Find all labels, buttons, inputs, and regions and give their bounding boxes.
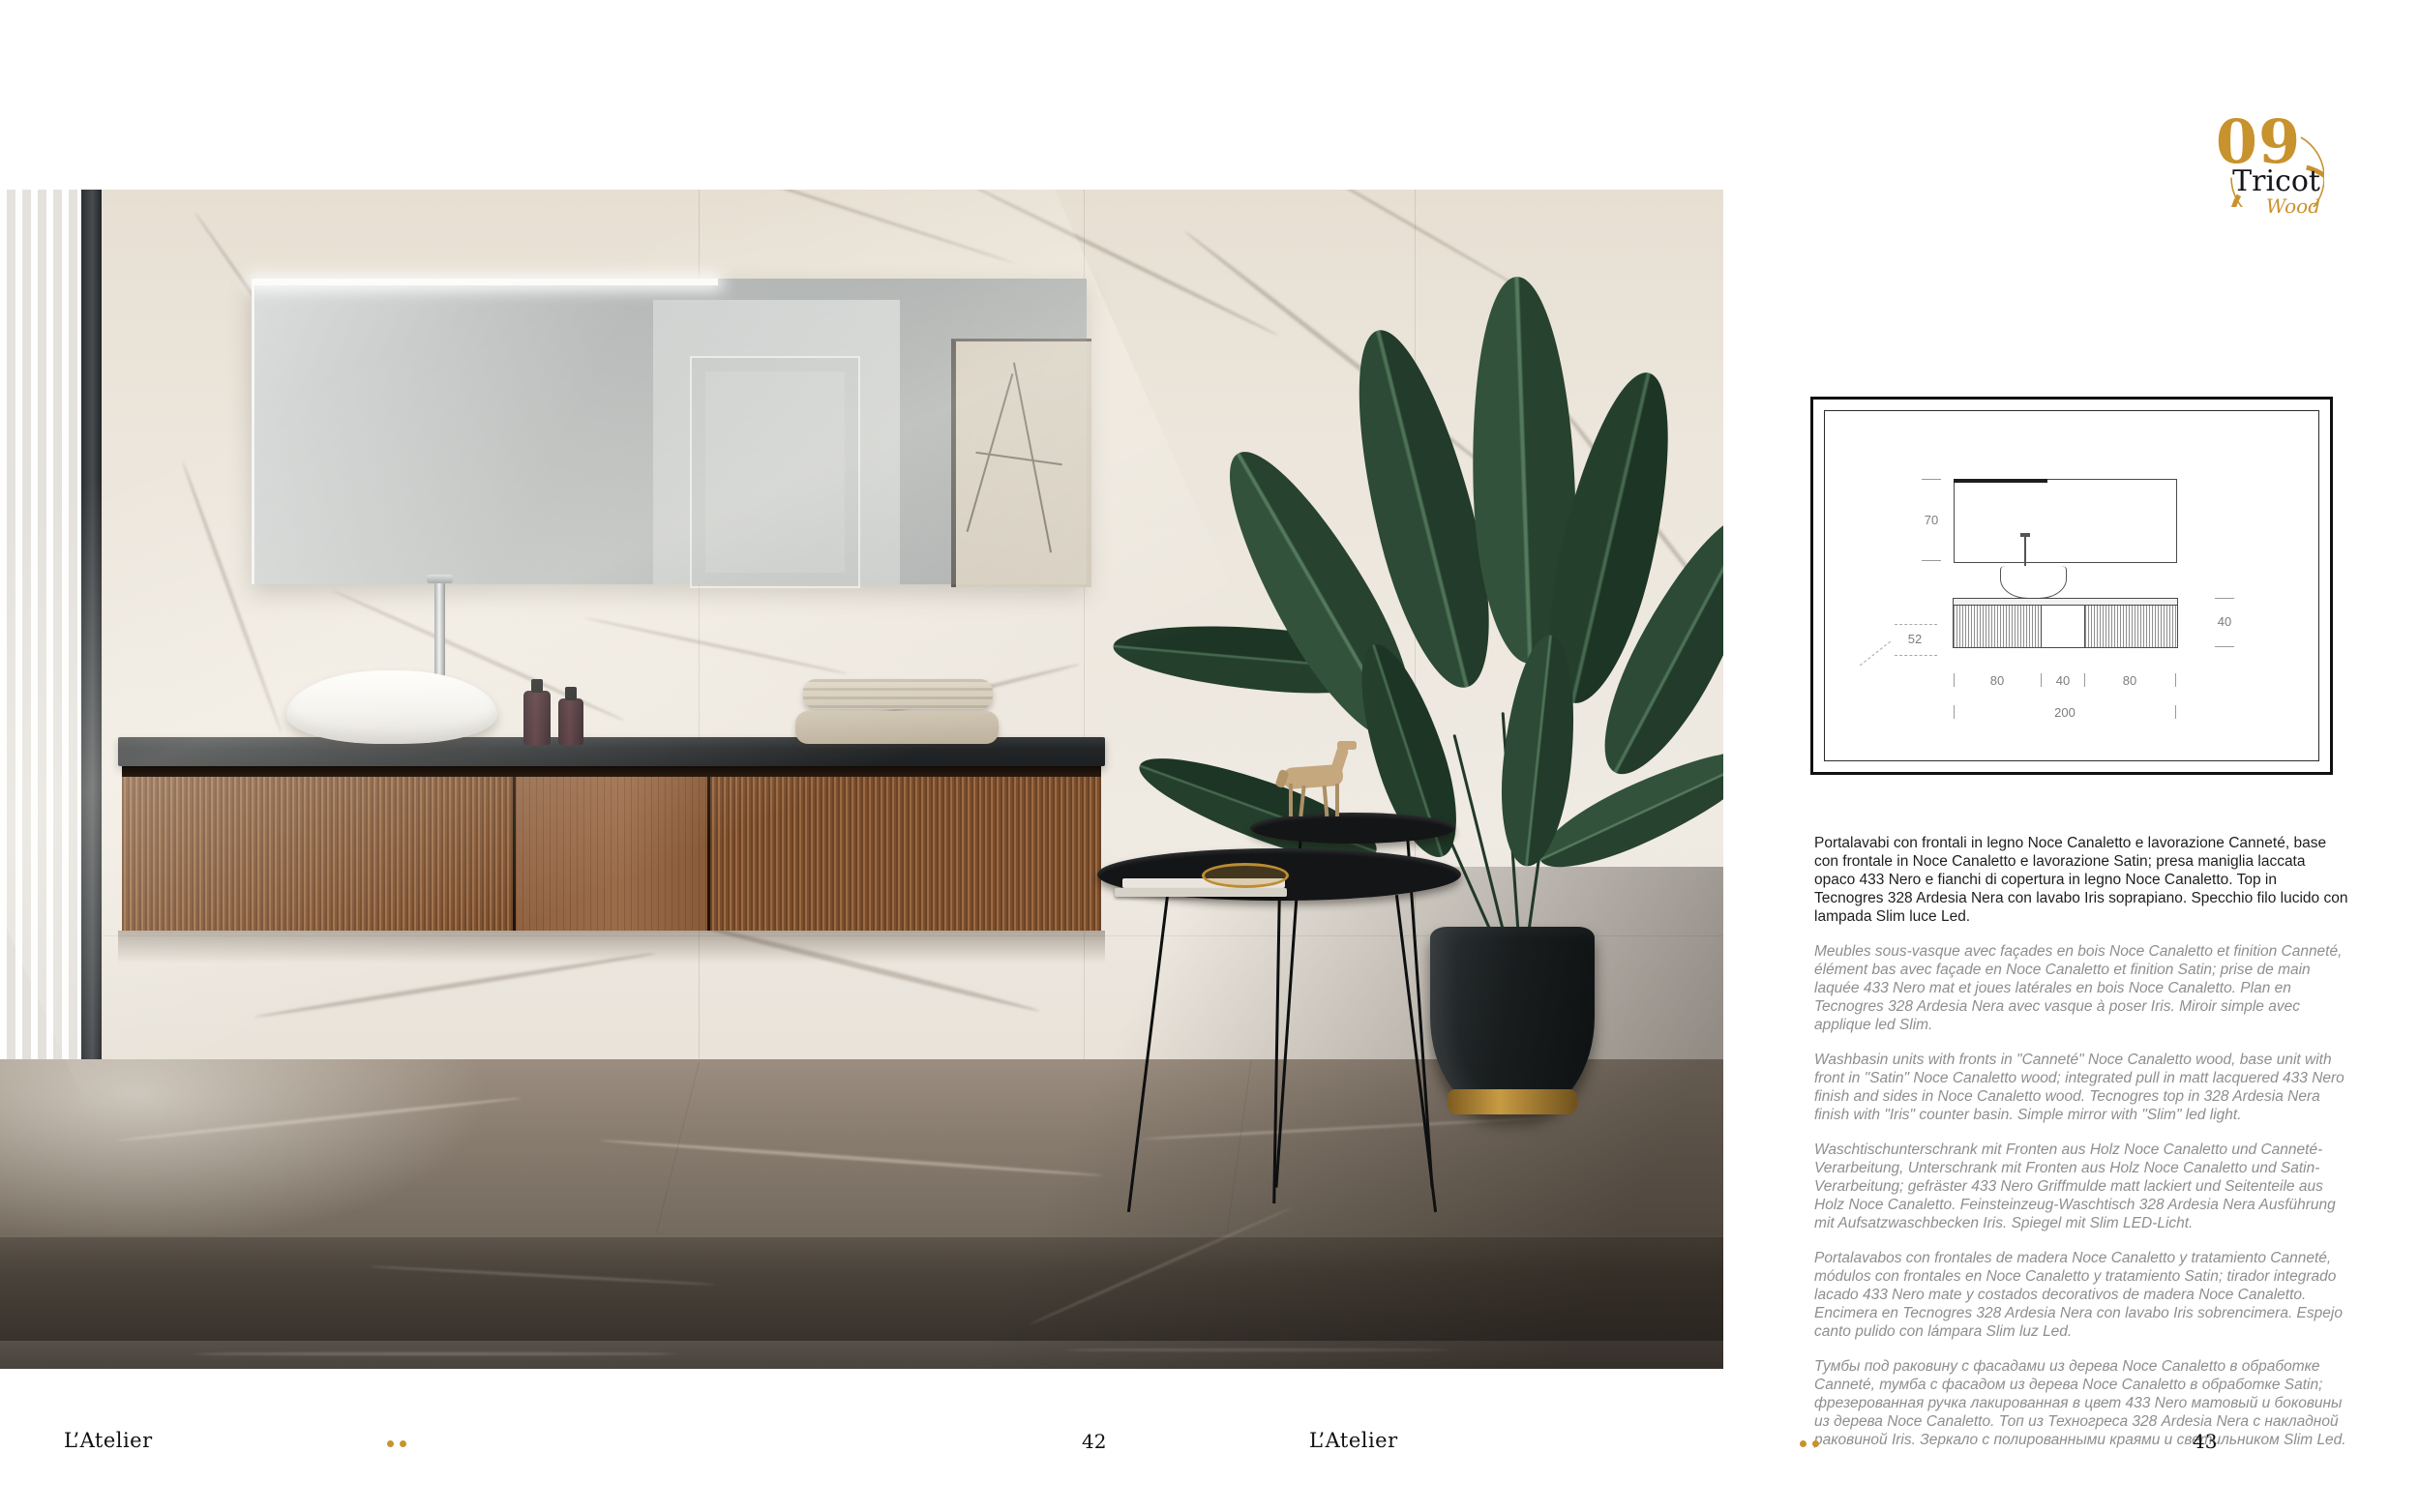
dim-tick (2215, 598, 2234, 599)
gold-dot (1800, 1440, 1807, 1447)
dim-dash (1895, 624, 1937, 625)
dim-tick (2175, 673, 2176, 687)
dim-depth: 52 (1896, 632, 1933, 646)
gold-dot (400, 1440, 406, 1447)
page-number-left: 42 (1082, 1430, 1106, 1453)
dim-width-middle: 40 (2034, 673, 2092, 688)
bathroom-photo (0, 190, 1723, 1369)
description-french: Meubles sous-vasque avec façades en bois… (1814, 942, 2348, 1034)
description-spanish: Portalavabos con frontales de madera Noc… (1814, 1249, 2348, 1341)
drawing-unit-right (2084, 605, 2178, 648)
brand-left: L’Atelier (64, 1429, 153, 1452)
dim-total-width: 200 (2036, 705, 2094, 720)
dim-tick (2215, 646, 2234, 647)
drawing-unit-left (1953, 605, 2042, 648)
drawing-faucet (2024, 535, 2026, 567)
dim-dash (1895, 655, 1937, 656)
collection-name: Tricot (2165, 164, 2320, 198)
footer-dots-right (1800, 1440, 1819, 1447)
brand-right: L’Atelier (1309, 1429, 1398, 1452)
horse-statuette-neck (1329, 746, 1350, 777)
description-italian: Portalavabi con frontali in legno Noce C… (1814, 834, 2348, 926)
page-number-right: 43 (2193, 1430, 2217, 1453)
drawing-mirror (1954, 479, 2177, 563)
floor-vein (368, 1265, 716, 1287)
drawing-faucet-head (2020, 533, 2030, 537)
gold-tray (1202, 863, 1289, 888)
footer-dots-left (387, 1440, 406, 1447)
drawing-unit-middle (2041, 605, 2085, 648)
drawing-basin (2000, 566, 2067, 599)
dim-tick (1922, 479, 1941, 480)
marble-vein (1276, 190, 1529, 294)
technical-drawing: 70 40 52 80 40 80 200 (1810, 397, 2333, 775)
dim-tick (1954, 705, 1955, 719)
gold-dot (387, 1440, 394, 1447)
floor-vein (194, 1352, 677, 1355)
description-german: Waschtischunterschrank mit Fronten aus H… (1814, 1141, 2348, 1232)
description-russian: Тумбы под раковину с фасадами из дерева … (1814, 1357, 2348, 1449)
collection-material: Wood (2165, 194, 2320, 218)
vanity-grip-recess (122, 766, 1101, 777)
horse-statuette-leg (1335, 784, 1339, 816)
plant-pot-gold-base (1448, 1089, 1577, 1114)
description-english: Washbasin units with fronts in "Canneté"… (1814, 1051, 2348, 1124)
drawing-mirror-led (1954, 479, 2047, 483)
dim-tick (1954, 673, 1955, 687)
dim-tick (2175, 705, 2176, 719)
gold-dot (1812, 1440, 1819, 1447)
side-table-small-top (1250, 813, 1455, 844)
dim-mirror-height: 70 (1912, 513, 1951, 527)
dim-width-right: 80 (2101, 673, 2159, 688)
book (1115, 888, 1287, 897)
plant-pot (1430, 927, 1595, 1114)
dim-unit-height: 40 (2205, 614, 2244, 629)
product-description: Portalavabi con frontali in legno Noce C… (1814, 834, 2348, 1466)
dim-tick (1922, 560, 1941, 561)
dim-width-left: 80 (1968, 673, 2026, 688)
horse-statuette-head (1337, 741, 1357, 750)
marble-vein (1183, 229, 1507, 484)
